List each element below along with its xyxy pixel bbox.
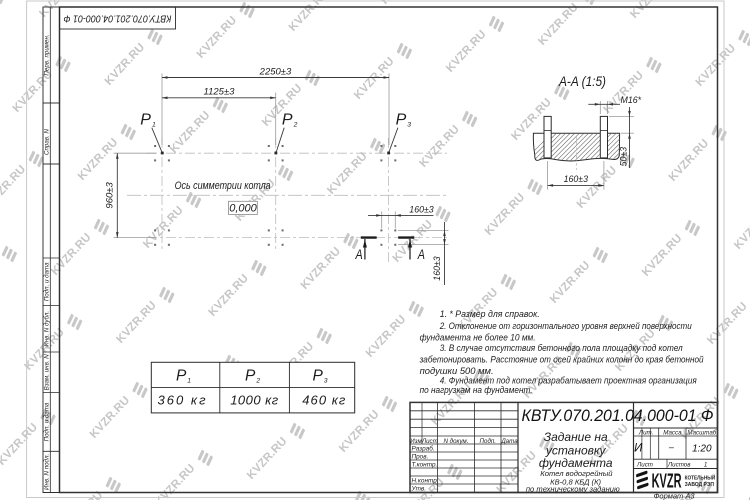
svg-text:KVZR.RU: KVZR.RU [548,259,593,306]
svg-text:KVZR.RU: KVZR.RU [352,55,397,102]
svg-text:KVZR.RU: KVZR.RU [483,191,528,238]
svg-text:2250±3: 2250±3 [259,66,292,77]
svg-text:KVZR.RU: KVZR.RU [575,164,620,211]
svg-text:1:20: 1:20 [692,443,712,454]
svg-text:КВТУ.070.201.04.000-01 Ф: КВТУ.070.201.04.000-01 Ф [522,407,714,425]
svg-text:160±3: 160±3 [432,256,442,281]
svg-text:KVZR.RU: KVZR.RU [141,204,186,251]
svg-text:1: 1 [704,462,707,469]
svg-text:0,000: 0,000 [229,203,257,215]
svg-text:A: A [417,247,425,263]
svg-text:Масштаб: Масштаб [687,430,716,437]
svg-text:N докум.: N докум. [443,438,468,445]
svg-text:160±3: 160±3 [564,174,589,184]
svg-text:Н.контр.: Н.контр. [412,478,439,485]
svg-text:KVZR.RU: KVZR.RU [245,435,290,482]
svg-text:Подп.: Подп. [480,438,496,445]
svg-text:Перв. примен.: Перв. примен. [44,34,51,75]
svg-text:M16*: M16* [621,95,642,105]
svg-text:1000 кг: 1000 кг [230,393,279,408]
svg-text:КВТУ.070.201.04.000-01 Ф: КВТУ.070.201.04.000-01 Ф [64,13,172,25]
svg-text:960±3: 960±3 [104,182,115,209]
svg-text:P3: P3 [396,112,412,129]
svg-text:KVZR.RU: KVZR.RU [0,258,2,305]
svg-text:KVZR.RU: KVZR.RU [364,313,409,360]
svg-text:KVZR.RU: KVZR.RU [153,462,198,500]
svg-text:Т.контр.: Т.контр. [412,462,438,469]
svg-text:KVZR.RU: KVZR.RU [337,408,382,455]
svg-text:по нагрузкам на фундамент.: по нагрузкам на фундамент. [420,385,533,395]
svg-text:Ось симметрии котла: Ось симметрии котла [175,180,271,192]
svg-text:забетонировать. Расстояние от: забетонировать. Расстояние от осей крайн… [419,355,704,365]
svg-text:Лист: Лист [421,438,438,445]
svg-text:KVZR.RU: KVZR.RU [61,489,106,500]
svg-text:Задание на: Задание на [544,430,608,444]
svg-text:4. Фундамент под котел разраба: 4. Фундамент под котел разрабатывает про… [440,376,697,386]
svg-text:Дата: Дата [500,438,518,445]
svg-text:Подп. и дата: Подп. и дата [44,262,51,301]
svg-text:KVZR.RU: KVZR.RU [299,245,344,292]
svg-text:A: A [355,247,363,263]
svg-text:KVZR.RU: KVZR.RU [195,14,240,61]
svg-text:Подп. и дата: Подп. и дата [44,402,51,441]
svg-text:KVZR.RU: KVZR.RU [694,42,739,89]
svg-text:ЗАВОД РЭП: ЗАВОД РЭП [685,482,714,488]
svg-text:460 кг: 460 кг [302,393,346,408]
svg-text:KVZR.RU: KVZR.RU [207,272,252,319]
svg-text:KVZR.RU: KVZR.RU [417,123,462,170]
svg-text:KVZR: KVZR [652,471,682,493]
svg-text:Справ. N: Справ. N [44,129,51,155]
svg-text:KVZR.RU: KVZR.RU [640,232,685,279]
svg-text:Разраб.: Разраб. [412,445,435,453]
svg-text:KVZR.RU: KVZR.RU [325,150,370,197]
svg-text:P1: P1 [140,112,156,129]
svg-text:KVZR.RU: KVZR.RU [76,136,121,183]
svg-text:Лист: Лист [636,462,653,469]
svg-text:KVZR.RU: KVZR.RU [114,299,159,346]
svg-text:3. В случае отсутствия бетонно: 3. В случае отсутствия бетонного пола пл… [440,343,684,353]
svg-text:P2: P2 [282,112,298,129]
svg-text:KVZR.RU: KVZR.RU [602,69,647,116]
svg-text:1125±3: 1125±3 [204,87,236,98]
svg-text:160±3: 160±3 [409,204,434,214]
svg-text:Изм: Изм [410,438,422,445]
svg-text:КОТЕЛЬНЫЙ: КОТЕЛЬНЫЙ [685,473,716,481]
svg-text:по техническому заданию: по техническому заданию [526,485,620,494]
svg-text:Формат А3: Формат А3 [653,492,695,500]
svg-text:Инв. N подл.: Инв. N подл. [44,454,51,490]
svg-text:KVZR.RU: KVZR.RU [732,205,750,252]
svg-text:KVZR.RU: KVZR.RU [744,463,750,500]
svg-text:50±3: 50±3 [618,147,628,167]
svg-text:2. Отклонение от горизонтально: 2. Отклонение от горизонтального уровня … [439,321,692,331]
svg-text:KVZR.RU: KVZR.RU [628,0,673,21]
svg-text:KVZR.RU: KVZR.RU [536,1,581,48]
svg-text:KVZR.RU: KVZR.RU [88,394,133,441]
svg-text:фундамента: фундамента [539,456,613,470]
svg-text:KVZR.RU: KVZR.RU [444,28,489,75]
svg-text:–: – [668,442,675,452]
svg-text:KVZR.RU: KVZR.RU [391,218,436,265]
svg-text:Листов: Листов [667,462,691,469]
svg-text:KVZR.RU: KVZR.RU [103,41,148,88]
svg-text:KVZR.RU: KVZR.RU [705,300,750,347]
svg-text:KVZR.RU: KVZR.RU [49,231,94,278]
svg-text:1. * Размер для справок.: 1. * Размер для справок. [440,309,540,319]
svg-text:подушки 500 мм.: подушки 500 мм. [420,366,494,376]
svg-text:Масса: Масса [663,430,682,437]
svg-text:Взам. инв. N: Взам. инв. N [44,354,51,391]
svg-text:KVZR.RU: KVZR.RU [287,0,332,34]
svg-text:Пров.: Пров. [412,454,429,461]
svg-text:Инв. N дубл.: Инв. N дубл. [44,311,51,347]
svg-text:Утв.: Утв. [411,486,427,493]
svg-text:фундамента не более 10 мм.: фундамента не более 10 мм. [420,332,536,342]
svg-text:KVZR.RU: KVZR.RU [168,109,213,156]
svg-text:KVZR.RU: KVZR.RU [667,137,712,184]
svg-text:И: И [634,443,643,455]
svg-text:A-A (1:5): A-A (1:5) [558,74,606,89]
svg-text:Лит.: Лит. [638,430,654,437]
svg-text:KVZR.RU: KVZR.RU [0,421,40,468]
svg-text:KVZR.RU: KVZR.RU [0,163,28,210]
